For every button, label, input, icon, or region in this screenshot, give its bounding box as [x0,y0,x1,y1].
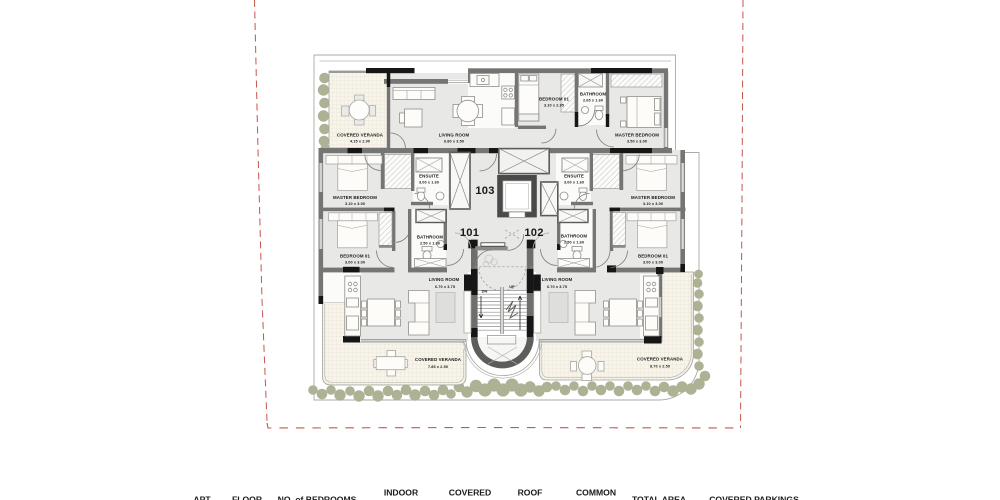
svg-text:COMMON: COMMON [576,488,616,498]
svg-text:INDOOR: INDOOR [384,488,419,498]
svg-text:MASTER BEDROOM: MASTER BEDROOM [333,195,377,200]
svg-text:2.50 x 1.60: 2.50 x 1.60 [564,241,584,245]
svg-text:3.00 x 3.00: 3.00 x 3.00 [643,261,663,265]
svg-text:3.00 x 3.00: 3.00 x 3.00 [345,261,365,265]
svg-text:6.80 x 3.50: 6.80 x 3.50 [444,140,464,144]
svg-text:3.10 x 2.85: 3.10 x 2.85 [544,104,564,108]
svg-text:3.00 x 1.60: 3.00 x 1.60 [419,181,439,185]
svg-text:BEDROOM 01: BEDROOM 01 [340,254,370,259]
svg-text:LIVING ROOM: LIVING ROOM [429,277,460,282]
svg-text:2.50 x 1.60: 2.50 x 1.60 [420,242,440,246]
svg-text:COVERED VERANDA: COVERED VERANDA [415,357,462,362]
svg-text:BATHROOM: BATHROOM [580,92,607,97]
svg-text:UP: UP [509,284,515,289]
svg-text:102: 102 [524,227,543,239]
svg-text:ENSUITE: ENSUITE [419,174,439,179]
svg-text:BEDROOM 01: BEDROOM 01 [539,97,569,102]
svg-text:COVERED VERANDA: COVERED VERANDA [337,133,384,138]
svg-text:103: 103 [475,185,494,197]
svg-text:3.50 x 3.00: 3.50 x 3.00 [627,140,647,144]
svg-text:LIVING ROOM: LIVING ROOM [542,277,573,282]
svg-text:FLOOR: FLOOR [232,494,263,500]
svg-text:APT: APT [193,494,211,500]
svg-text:2.65 x 1.60: 2.65 x 1.60 [583,99,603,103]
svg-text:4.15 x 2.90: 4.15 x 2.90 [350,140,370,144]
svg-text:COVERED: COVERED [449,488,492,498]
svg-text:3.10 x 3.00: 3.10 x 3.00 [643,202,663,206]
svg-text:ROOF: ROOF [518,488,543,498]
svg-text:COVERED PARKINGS: COVERED PARKINGS [709,494,799,500]
svg-text:MASTER BEDROOM: MASTER BEDROOM [631,195,675,200]
svg-text:BATHROOM: BATHROOM [561,234,588,239]
svg-text:6.70 x 3.75: 6.70 x 3.75 [547,285,567,289]
svg-text:3.10 x 3.00: 3.10 x 3.00 [345,202,365,206]
svg-text:TOTAL AREA: TOTAL AREA [632,494,686,500]
svg-text:BATHROOM: BATHROOM [417,235,444,240]
svg-text:COVERED VERANDA: COVERED VERANDA [637,357,684,362]
svg-text:NO. of BEDROOMS: NO. of BEDROOMS [278,494,357,500]
svg-text:6.70 x 3.75: 6.70 x 3.75 [435,285,455,289]
svg-text:3.00 x 1.60: 3.00 x 1.60 [564,181,584,185]
svg-text:8.70 x 2.50: 8.70 x 2.50 [650,365,670,369]
svg-text:101: 101 [460,227,479,239]
svg-text:LIVING ROOM: LIVING ROOM [439,133,470,138]
svg-text:BEDROOM 01: BEDROOM 01 [638,254,668,259]
svg-text:7.85 x 2.50: 7.85 x 2.50 [428,365,448,369]
svg-text:DN: DN [482,289,488,294]
svg-text:ENSUITE: ENSUITE [564,174,584,179]
svg-text:MASTER BEDROOM: MASTER BEDROOM [615,133,659,138]
